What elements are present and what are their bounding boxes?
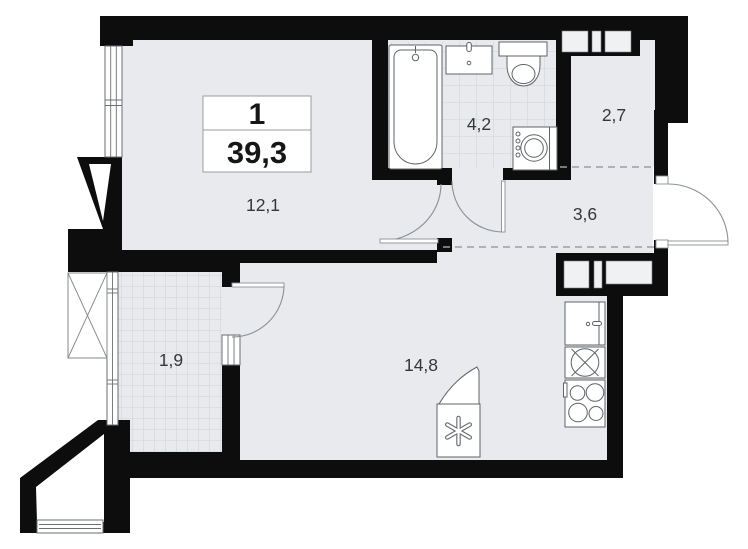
balcony-glazing (107, 272, 118, 425)
kitchen-cabinet (565, 302, 605, 345)
balcony-label: 1,9 (159, 350, 183, 370)
cabinet-handle-icon (593, 322, 602, 326)
washing-machine (513, 127, 557, 170)
wall-right-upper (655, 16, 688, 123)
top-shaft-box-2 (592, 31, 601, 52)
wall-right-mid (654, 110, 668, 184)
kitchen-sink (565, 347, 605, 378)
living-room-label: 12,1 (246, 195, 280, 215)
rooms-count: 1 (249, 98, 266, 131)
lower-left-window (37, 520, 103, 533)
upper-hall-label: 2,7 (602, 105, 626, 125)
wall-kitchen-right (607, 296, 623, 478)
bathtub (389, 45, 442, 169)
living-room-window (105, 46, 122, 157)
hallway-floor (372, 167, 653, 263)
entry-door-jamb-top (656, 176, 668, 184)
wall-bathroom-left (372, 28, 388, 180)
floor-plan-page: 1 39,3 12,1 4,2 2,7 3,6 1,9 14,8 (0, 0, 748, 549)
south-shaft-box-3 (606, 261, 652, 284)
entry-door (656, 176, 728, 248)
apartment-info-box: 1 39,3 (203, 96, 311, 172)
balcony-divider-window (222, 335, 240, 365)
balcony-door-threshold (222, 287, 240, 335)
wall-balcony-divider-lower (222, 365, 240, 455)
hallway-label: 3,6 (573, 204, 597, 224)
top-shaft-box-1 (562, 31, 588, 52)
floor-plan-canvas: 1 39,3 12,1 4,2 2,7 3,6 1,9 14,8 (0, 0, 748, 549)
top-shaft-box-3 (605, 31, 631, 52)
wall-balcony-top (108, 250, 240, 272)
bathroom-label: 4,2 (467, 114, 491, 134)
upper-hall-floor (571, 40, 655, 167)
stove (564, 380, 606, 427)
south-shaft-box-1 (564, 261, 589, 288)
entry-door-jamb-bottom (656, 240, 668, 248)
total-area: 39,3 (227, 135, 287, 170)
washbasin-faucet-icon (467, 43, 472, 52)
washbasin (446, 43, 492, 75)
south-shaft-box-2 (594, 261, 602, 288)
stove-handle-icon (564, 383, 568, 397)
living-door-jamb-bottom (437, 238, 452, 252)
kitchen-label: 14,8 (404, 355, 438, 375)
bathtub-faucet-icon (412, 54, 418, 60)
wall-top-left-step (100, 16, 133, 46)
living-door-jamb-top (437, 168, 452, 185)
ac-unit-basket (68, 273, 107, 358)
